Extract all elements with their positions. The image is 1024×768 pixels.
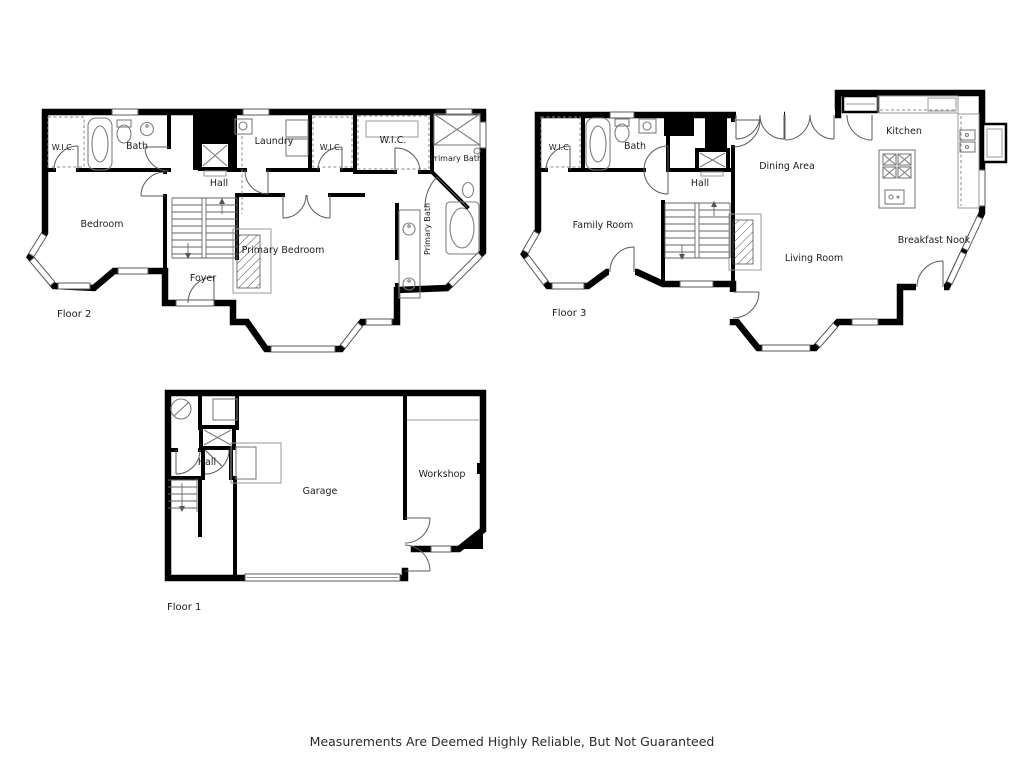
room-label-dining-area: Dining Area: [759, 161, 815, 172]
floorplan-page: W.I.C. Bath Hall Laundry W.I.C. W.I.C. P…: [0, 0, 1024, 768]
stove-burners: [883, 154, 911, 178]
floorplan-drawing: W.I.C. Bath Hall Laundry W.I.C. W.I.C. P…: [0, 0, 1024, 768]
floor3-door-openings: [609, 110, 944, 319]
floor2-elevator-shaft: [193, 114, 237, 176]
floor3-elevator-shaft: [664, 114, 728, 176]
island-sink: [885, 190, 904, 204]
room-label-wic-floor2: W.I.C.: [52, 143, 75, 152]
floor2-fireplace: [233, 229, 271, 293]
room-label-bedroom-floor2: Bedroom: [81, 219, 124, 230]
disclaimer-text: Measurements Are Deemed Highly Reliable,…: [310, 734, 715, 749]
appliance: [213, 399, 237, 420]
room-label-laundry-floor2: Laundry: [255, 136, 294, 147]
floor2-label: Floor 2: [57, 309, 91, 320]
floor3-stairs: [665, 201, 730, 260]
kitchen-bay-box: [983, 124, 1006, 162]
floor1-stairs: [168, 478, 197, 512]
room-label-wic2-floor2: W.I.C.: [320, 143, 343, 152]
floor1-plan: Hall Garage Workshop Floor 1: [167, 393, 483, 613]
sink: [639, 119, 656, 133]
sink: [960, 130, 975, 140]
floor3-windows: [523, 112, 985, 351]
room-label-garage: Garage: [303, 486, 338, 497]
room-label-bath-floor2: Bath: [126, 141, 148, 152]
floor1-elevator-shaft: [201, 427, 234, 448]
room-label-foyer-floor2: Foyer: [190, 273, 216, 284]
toilet: [615, 124, 629, 142]
kitchen-island: [879, 150, 915, 208]
floor2-closets: [48, 116, 429, 169]
room-label-bath-floor3: Bath: [624, 141, 646, 152]
room-label-hall-floor2: Hall: [210, 178, 228, 189]
floor3-label: Floor 3: [552, 308, 586, 319]
floor3-fireplace: [729, 214, 761, 270]
room-label-family-room: Family Room: [573, 220, 634, 231]
room-label-kitchen: Kitchen: [886, 126, 922, 137]
room-label-workshop: Workshop: [419, 469, 466, 480]
room-label-hall-floor1: Hall: [198, 457, 216, 468]
room-label-breakfast-nook: Breakfast Nook: [898, 235, 971, 246]
floor2-plan: W.I.C. Bath Hall Laundry W.I.C. W.I.C. P…: [29, 109, 486, 352]
room-label-hall-floor3: Hall: [691, 178, 709, 189]
room-label-primary-bedroom-floor2: Primary Bedroom: [242, 245, 325, 256]
room-label-wic3-floor2: W.I.C.: [380, 135, 407, 146]
washer: [286, 120, 308, 137]
floor1-label: Floor 1: [167, 602, 201, 613]
floor3-plan: W.I.C. Bath Hall Family Room Dining Area…: [523, 93, 1006, 351]
toilet: [463, 183, 474, 198]
room-label-wic-floor3: W.I.C.: [549, 143, 572, 152]
room-label-primary-bath-side-floor2: Primary Bath: [423, 203, 432, 255]
floor1-doors: [176, 450, 430, 571]
room-label-living-room: Living Room: [785, 253, 843, 264]
floor2-stairs: [172, 198, 237, 259]
room-label-primary-bath-top-floor2: Primary Bath: [430, 154, 482, 163]
floor1-windows: [431, 546, 451, 552]
hall-sink: [235, 119, 252, 134]
garage-door: [245, 574, 400, 581]
sink: [960, 142, 975, 152]
